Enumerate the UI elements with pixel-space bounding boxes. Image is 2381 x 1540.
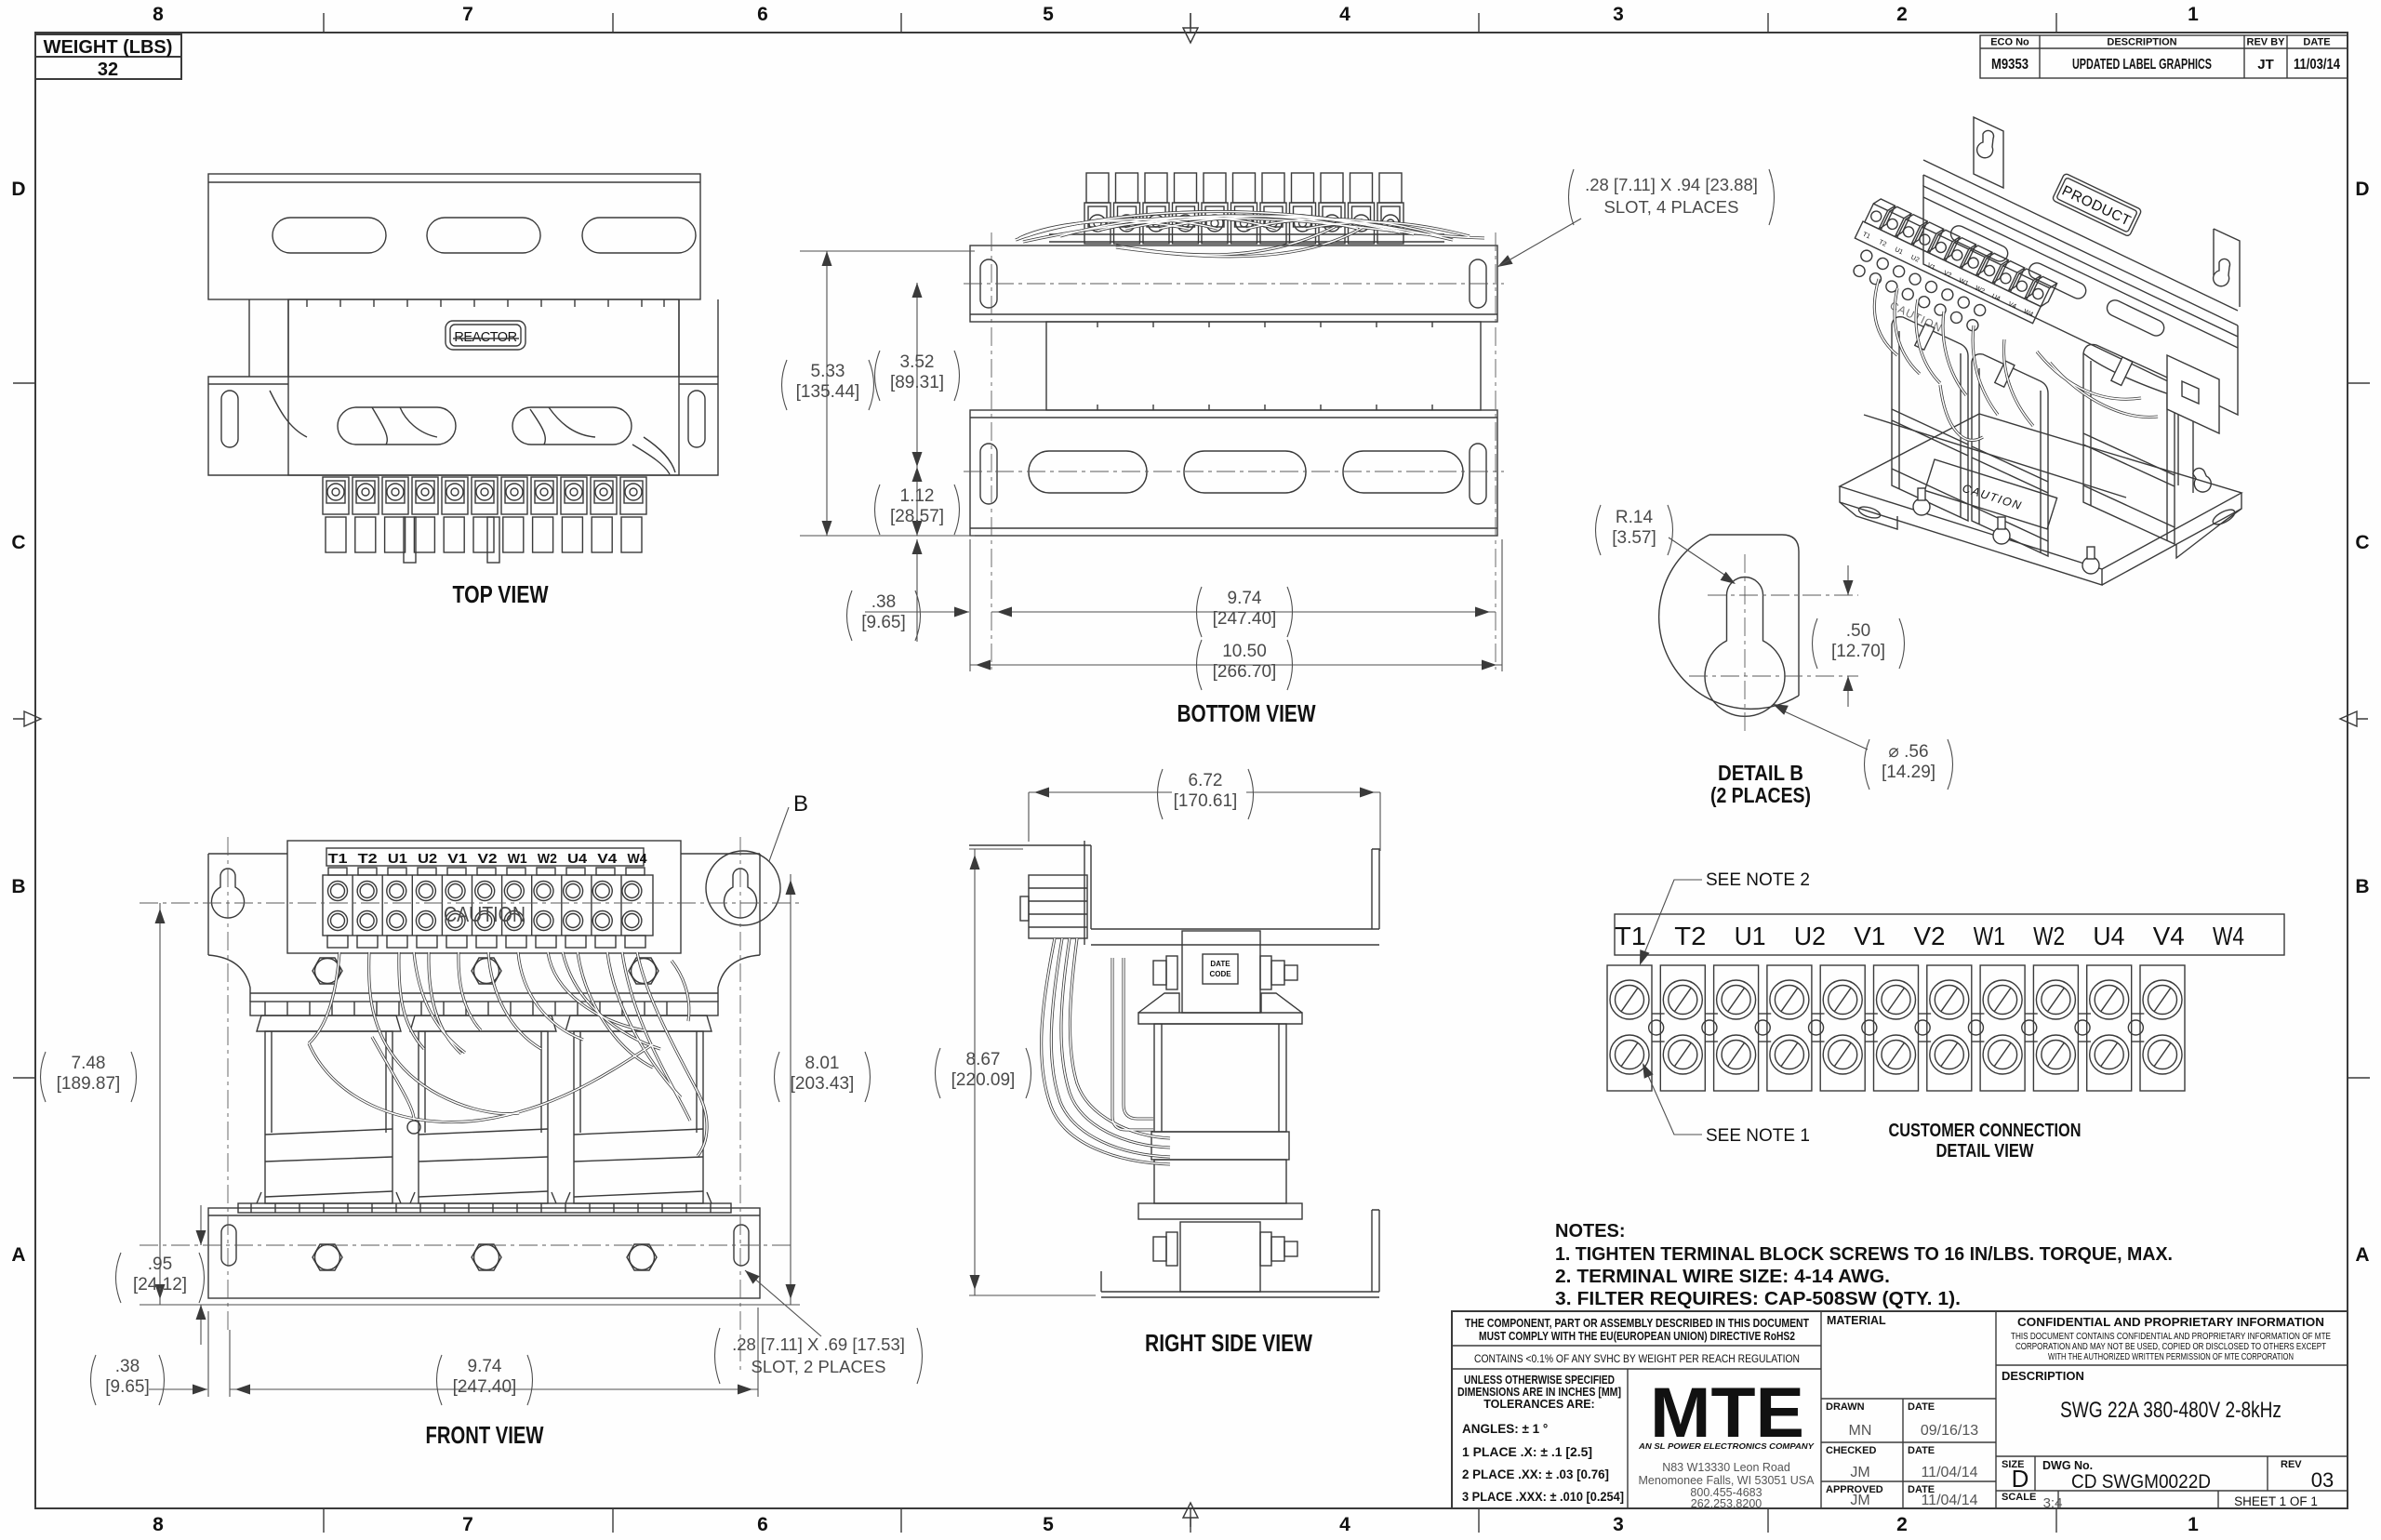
svg-text:[14.29]: [14.29] [1882,763,1935,782]
svg-text:03: 03 [2311,1468,2334,1492]
svg-text:DESCRIPTION: DESCRIPTION [2107,37,2176,48]
svg-text:CONTAINS <0.1% OF ANY SVHC BY: CONTAINS <0.1% OF ANY SVHC BY WEIGHT PER… [1474,1352,1800,1365]
svg-text:SCALE: SCALE [2002,1492,2036,1503]
svg-text:DETAIL B: DETAIL B [1718,761,1803,785]
svg-text:T2: T2 [358,852,378,867]
svg-text:5.33: 5.33 [811,362,845,381]
svg-text:(2 PLACES): (2 PLACES) [1710,783,1811,807]
svg-text:V2: V2 [1914,922,1946,950]
svg-text:CAUTION: CAUTION [444,902,525,926]
svg-text:[247.40]: [247.40] [1213,609,1277,629]
svg-text:JM: JM [1850,1493,1869,1508]
svg-text:JT: JT [2257,57,2274,73]
svg-text:3. FILTER REQUIRES: CAP-508SW: 3. FILTER REQUIRES: CAP-508SW (QTY. 1). [1555,1289,1961,1309]
svg-text:D: D [2012,1465,2029,1493]
svg-text:⌀ .56: ⌀ .56 [1888,742,1928,762]
svg-text:T2: T2 [1674,922,1706,950]
svg-text:B: B [2355,876,2369,897]
svg-text:W2: W2 [2033,922,2065,950]
svg-text:DIMENSIONS ARE IN INCHES [MM]: DIMENSIONS ARE IN INCHES [MM] [1457,1386,1621,1399]
svg-text:W2: W2 [538,852,557,867]
svg-text:SLOT, 4 PLACES: SLOT, 4 PLACES [1604,197,1739,217]
svg-text:V4: V4 [2153,922,2185,950]
svg-text:7: 7 [462,1514,473,1535]
svg-text:9.74: 9.74 [468,1357,502,1376]
svg-text:U1: U1 [388,852,407,867]
svg-text:U4: U4 [567,852,587,867]
svg-text:W1: W1 [1974,922,2005,950]
svg-text:B: B [793,791,808,816]
svg-text:CD SWGM0022D: CD SWGM0022D [2071,1471,2211,1493]
svg-text:[9.65]: [9.65] [861,613,906,632]
svg-text:3:4: 3:4 [2043,1495,2063,1511]
svg-text:11/04/14: 11/04/14 [1921,1465,1977,1480]
svg-text:TOP VIEW: TOP VIEW [453,580,549,608]
svg-text:1 PLACE .X: ± .1 [2.5]: 1 PLACE .X: ± .1 [2.5] [1462,1445,1592,1459]
svg-text:8.67: 8.67 [966,1050,1001,1069]
svg-text:D: D [2355,179,2369,200]
svg-text:3: 3 [1613,4,1624,25]
svg-text:DRAWN: DRAWN [1826,1401,1865,1413]
svg-text:U4: U4 [2093,922,2124,950]
svg-text:SEE NOTE 2: SEE NOTE 2 [1706,870,1810,890]
svg-text:A: A [2355,1244,2369,1266]
svg-text:10.50: 10.50 [1222,642,1267,661]
svg-text:V1: V1 [1854,922,1885,950]
svg-text:SEE NOTE 1: SEE NOTE 1 [1706,1126,1810,1146]
svg-text:5: 5 [1043,1514,1054,1535]
svg-text:DWG No.: DWG No. [2042,1459,2093,1472]
svg-text:C: C [11,532,25,553]
svg-text:FRONT VIEW: FRONT VIEW [426,1421,544,1449]
svg-text:3: 3 [1613,1514,1624,1535]
svg-text:.38: .38 [115,1357,140,1376]
svg-text:RIGHT SIDE VIEW: RIGHT SIDE VIEW [1145,1329,1312,1357]
svg-text:JM: JM [1850,1465,1869,1480]
svg-text:UNLESS OTHERWISE SPECIFIED: UNLESS OTHERWISE SPECIFIED [1464,1374,1615,1387]
svg-text:V1: V1 [447,852,467,867]
svg-text:262.253.8200: 262.253.8200 [1691,1497,1762,1510]
svg-text:.28 [7.11] X .69 [17.53]: .28 [7.11] X .69 [17.53] [732,1334,905,1354]
svg-text:DATE: DATE [2303,37,2330,48]
svg-text:MN: MN [1849,1423,1872,1439]
svg-text:CUSTOMER CONNECTION: CUSTOMER CONNECTION [1889,1121,2082,1141]
svg-text:V4: V4 [597,852,617,867]
svg-text:REV BY: REV BY [2247,37,2286,48]
svg-text:1.12: 1.12 [900,486,935,506]
svg-text:3.52: 3.52 [900,352,935,372]
svg-text:4: 4 [1339,1514,1350,1535]
svg-text:32: 32 [98,60,118,80]
svg-text:2: 2 [1896,4,1908,25]
svg-text:.95: .95 [148,1255,172,1274]
svg-text:R.14: R.14 [1616,508,1654,527]
svg-text:DATE: DATE [1908,1445,1935,1456]
svg-text:11/04/14: 11/04/14 [1921,1493,1977,1508]
svg-text:C: C [2355,532,2369,553]
svg-text:NOTES:: NOTES: [1555,1221,1626,1241]
svg-text:8: 8 [153,1514,164,1535]
svg-text:9.74: 9.74 [1228,589,1262,608]
svg-text:.50: .50 [1846,621,1870,641]
svg-text:T1: T1 [1615,922,1646,950]
svg-text:4: 4 [1339,4,1350,25]
svg-text:W1: W1 [508,852,527,867]
svg-text:[203.43]: [203.43] [791,1074,855,1094]
svg-text:B: B [11,876,25,897]
svg-text:DETAIL VIEW: DETAIL VIEW [1936,1141,2034,1162]
svg-text:U1: U1 [1735,922,1766,950]
svg-text:SHEET 1 OF 1: SHEET 1 OF 1 [2234,1494,2318,1508]
svg-text:A: A [11,1244,25,1266]
svg-text:8.01: 8.01 [805,1054,840,1073]
svg-text:CODE: CODE [1209,970,1231,978]
svg-text:CONFIDENTIAL AND PROPRIETARY I: CONFIDENTIAL AND PROPRIETARY INFORMATION [2017,1315,2324,1329]
svg-text:U2: U2 [418,852,437,867]
svg-text:W4: W4 [2213,922,2244,950]
svg-text:[9.65]: [9.65] [105,1377,150,1397]
svg-text:7: 7 [462,4,473,25]
svg-text:[12.70]: [12.70] [1831,642,1885,661]
svg-text:T1: T1 [328,852,348,867]
svg-text:MATERIAL: MATERIAL [1827,1314,1886,1327]
svg-text:6.72: 6.72 [1189,771,1223,790]
svg-text:MUST COMPLY WITH THE EU(EUROPE: MUST COMPLY WITH THE EU(EUROPEAN UNION) … [1479,1330,1795,1343]
svg-text:6: 6 [757,4,768,25]
svg-text:WITH THE AUTHORIZED WRITTEN PE: WITH THE AUTHORIZED WRITTEN PERMISSION O… [2048,1351,2294,1362]
svg-text:2. TERMINAL WIRE SIZE: 4-14 A: 2. TERMINAL WIRE SIZE: 4-14 AWG. [1555,1267,1890,1287]
svg-text:[89.31]: [89.31] [890,373,944,392]
svg-text:V2: V2 [478,852,498,867]
svg-text:[24.12]: [24.12] [133,1275,187,1294]
svg-text:WEIGHT (LBS): WEIGHT (LBS) [44,37,173,58]
svg-text:REACTOR: REACTOR [454,330,516,345]
svg-text:D: D [11,179,25,200]
svg-text:.38: .38 [871,592,896,612]
svg-text:2 PLACE .XX: ± .03 [0.76]: 2 PLACE .XX: ± .03 [0.76] [1462,1467,1609,1481]
svg-text:ECO No: ECO No [1990,37,2029,48]
svg-text:[135.44]: [135.44] [796,382,860,402]
svg-text:TOLERANCES ARE:: TOLERANCES ARE: [1483,1398,1594,1411]
svg-text:DATE: DATE [1908,1401,1935,1413]
svg-text:1: 1 [2188,1514,2199,1535]
svg-text:REV: REV [2281,1459,2302,1470]
svg-text:[3.57]: [3.57] [1612,528,1656,548]
svg-text:3 PLACE .XXX: ± .010 [0.254]: 3 PLACE .XXX: ± .010 [0.254] [1462,1490,1624,1504]
svg-text:DATE: DATE [1210,960,1230,968]
svg-text:SLOT, 2 PLACES: SLOT, 2 PLACES [752,1357,886,1376]
svg-text:09/16/13: 09/16/13 [1921,1423,1978,1439]
svg-text:CHECKED: CHECKED [1826,1445,1876,1456]
svg-text:[189.87]: [189.87] [57,1074,121,1094]
svg-text:7.48: 7.48 [72,1054,106,1073]
svg-text:11/03/14: 11/03/14 [2294,57,2340,73]
svg-text:8: 8 [153,4,164,25]
svg-text:DESCRIPTION: DESCRIPTION [2002,1369,2084,1383]
svg-text:BOTTOM VIEW: BOTTOM VIEW [1177,699,1316,727]
svg-text:M9353: M9353 [1991,57,2029,73]
svg-text:AN SL POWER ELECTRONICS COMPAN: AN SL POWER ELECTRONICS COMPANY [1638,1441,1816,1451]
svg-text:[266.70]: [266.70] [1213,662,1277,682]
svg-text:U2: U2 [1794,922,1826,950]
svg-text:5: 5 [1043,4,1054,25]
svg-text:ANGLES: ± 1 °: ANGLES: ± 1 ° [1462,1422,1548,1436]
svg-text:[28.57]: [28.57] [890,507,944,526]
svg-text:W4: W4 [628,852,647,867]
svg-text:2: 2 [1896,1514,1908,1535]
svg-text:[170.61]: [170.61] [1174,791,1238,811]
svg-text:.28 [7.11] X .94 [23.88]: .28 [7.11] X .94 [23.88] [1585,175,1758,194]
svg-text:6: 6 [757,1514,768,1535]
svg-text:1: 1 [2188,4,2199,25]
svg-text:Menomonee Falls, WI 53051 USA: Menomonee Falls, WI 53051 USA [1639,1474,1816,1487]
svg-text:SWG 22A 380-480V 2-8kHz: SWG 22A 380-480V 2-8kHz [2060,1398,2281,1423]
svg-text:UPDATED LABEL GRAPHICS: UPDATED LABEL GRAPHICS [2072,57,2212,73]
svg-text:THE COMPONENT, PART OR ASSEMBL: THE COMPONENT, PART OR ASSEMBLY DESCRIBE… [1465,1317,1809,1330]
svg-text:[220.09]: [220.09] [951,1070,1016,1090]
svg-text:1. TIGHTEN TERMINAL BLOCK SCR: 1. TIGHTEN TERMINAL BLOCK SCREWS TO 16 I… [1555,1244,2173,1265]
svg-text:[247.40]: [247.40] [453,1377,517,1397]
svg-text:N83 W13330 Leon Road: N83 W13330 Leon Road [1662,1461,1790,1474]
